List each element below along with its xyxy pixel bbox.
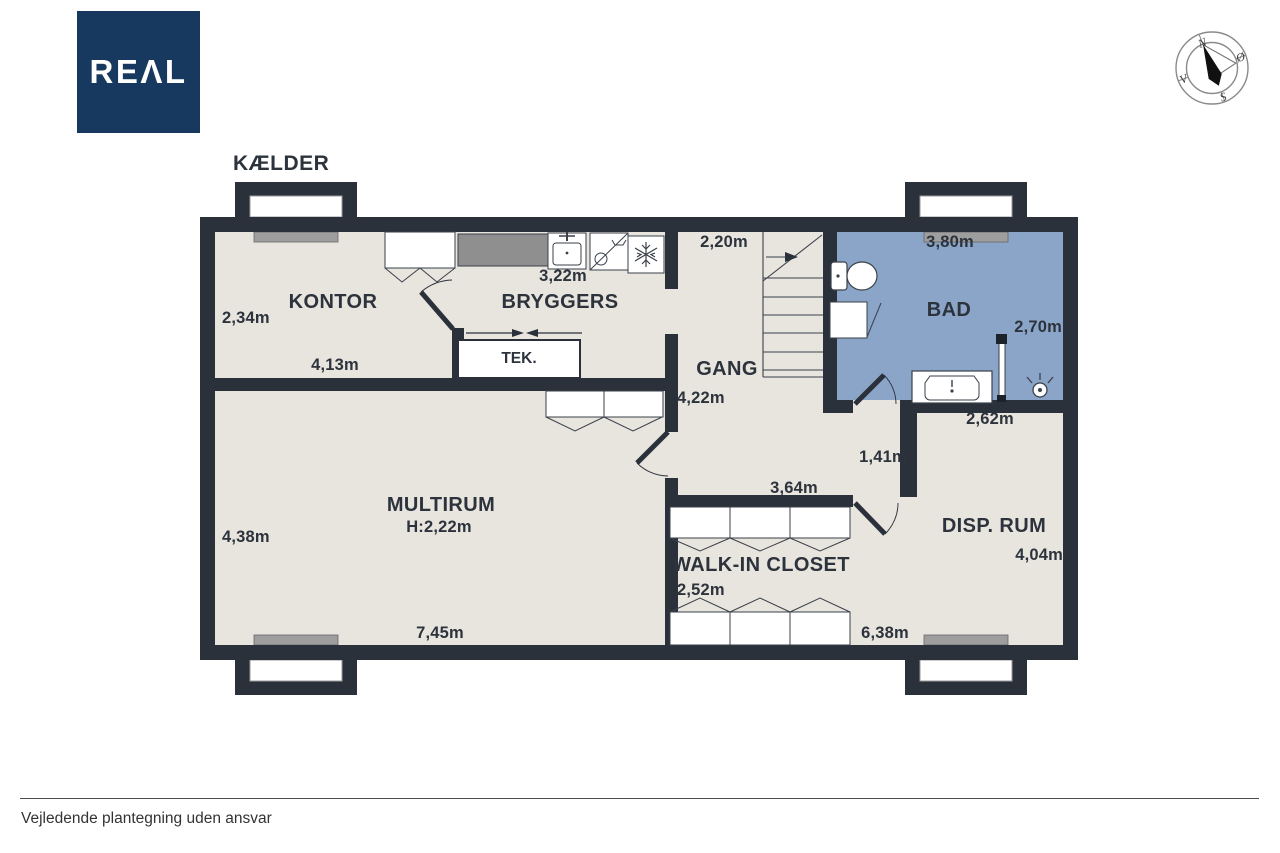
dim-walkin-bottom: 6,38m bbox=[861, 625, 909, 642]
toilet-icon bbox=[831, 262, 877, 290]
dim-multirum-height: 4,38m bbox=[222, 529, 270, 546]
room-label-bad: BAD bbox=[927, 300, 972, 320]
vanity-sink-icon bbox=[912, 371, 992, 403]
floor-plan-drawing bbox=[0, 0, 1280, 853]
room-label-gang: GANG bbox=[696, 359, 758, 379]
dim-kontor-width: 4,13m bbox=[311, 357, 359, 374]
dim-multirum-ceiling: H:2,22m bbox=[406, 519, 472, 536]
washing-machine-icon bbox=[590, 233, 628, 270]
footer-divider bbox=[20, 798, 1259, 799]
room-label-kontor: KONTOR bbox=[289, 292, 378, 312]
dim-multirum-width: 7,45m bbox=[416, 625, 464, 642]
sink-icon bbox=[548, 232, 586, 269]
dim-gang-length: 4,22m bbox=[677, 390, 725, 407]
dim-disprum-corridor: 1,41m bbox=[859, 449, 907, 466]
dim-walkin-top: 3,64m bbox=[770, 480, 818, 497]
dim-walkin-depth: 2,52m bbox=[677, 582, 725, 599]
room-label-disprum: DISP. RUM bbox=[942, 516, 1046, 536]
room-label-multirum: MULTIRUM bbox=[387, 495, 495, 515]
freezer-icon bbox=[628, 236, 664, 273]
dim-disprum-height: 4,04m bbox=[1015, 547, 1063, 564]
room-label-bryggers: BRYGGERS bbox=[502, 292, 619, 312]
dim-bryggers-counter: 3,22m bbox=[539, 268, 587, 285]
staircase bbox=[763, 232, 823, 377]
floor-plan-page: REΛL N Ø S V KÆLDER bbox=[0, 0, 1280, 853]
dim-bad-width: 3,80m bbox=[926, 234, 974, 251]
footer-disclaimer: Vejledende plantegning uden ansvar bbox=[21, 810, 272, 828]
dim-bad-depth: 2,70m bbox=[1014, 319, 1062, 336]
room-label-tek: TEK. bbox=[501, 351, 536, 367]
dim-gang-stair: 2,20m bbox=[700, 234, 748, 251]
room-label-walkin: WALK-IN CLOSET bbox=[672, 555, 850, 575]
dim-kontor-height: 2,34m bbox=[222, 310, 270, 327]
dim-disprum-top: 2,62m bbox=[966, 411, 1014, 428]
